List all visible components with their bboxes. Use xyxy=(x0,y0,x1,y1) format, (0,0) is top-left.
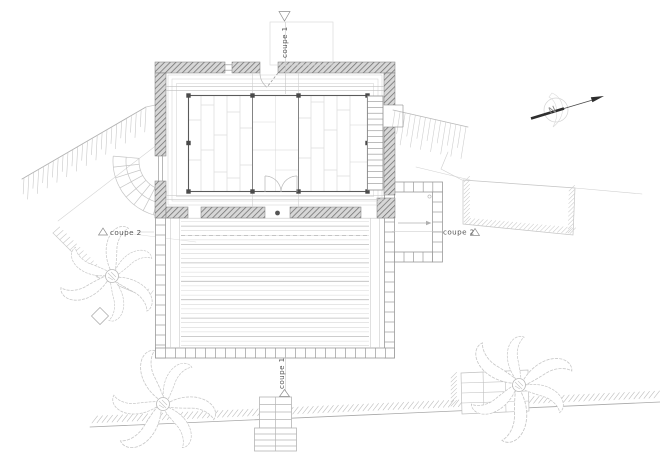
section-marker-icon xyxy=(280,390,290,397)
north-arrow-icon: N xyxy=(531,93,604,127)
section-label-coupe1-top: coupe 1 xyxy=(280,26,289,58)
leader-arrowhead-icon xyxy=(426,221,432,225)
terrain-slope-hachures xyxy=(22,104,660,427)
column-post-dot xyxy=(275,211,280,216)
wood-plank-floor xyxy=(188,96,368,192)
section-label-coupe2-right: coupe 2 xyxy=(443,228,475,237)
deck-tile-border-bottom xyxy=(156,348,395,358)
site-plan-canvas: coupe 1 coupe 1 coupe 2 coupe 2 N xyxy=(0,0,660,468)
spa-platform xyxy=(395,182,443,262)
north-arrowhead-icon xyxy=(591,96,604,102)
architectural-plan-drawing: coupe 1 coupe 1 coupe 2 coupe 2 N xyxy=(0,0,660,468)
section-marker-icon xyxy=(99,228,108,235)
window-glazing xyxy=(159,65,404,181)
section-label-coupe1-bottom: coupe 1 xyxy=(277,357,286,389)
deck-boards xyxy=(181,222,369,346)
interior-structure xyxy=(186,73,383,215)
interior-floor xyxy=(166,75,384,205)
section-marker-icon xyxy=(279,12,290,22)
section-label-coupe2-left: coupe 2 xyxy=(110,228,142,237)
interior-stair-ladder xyxy=(368,96,384,190)
palm-trees xyxy=(60,223,573,455)
exterior-walls xyxy=(155,62,395,218)
boulder-diamond xyxy=(92,308,109,325)
door-swings xyxy=(260,73,297,192)
deck-tile-border-left xyxy=(156,215,166,358)
